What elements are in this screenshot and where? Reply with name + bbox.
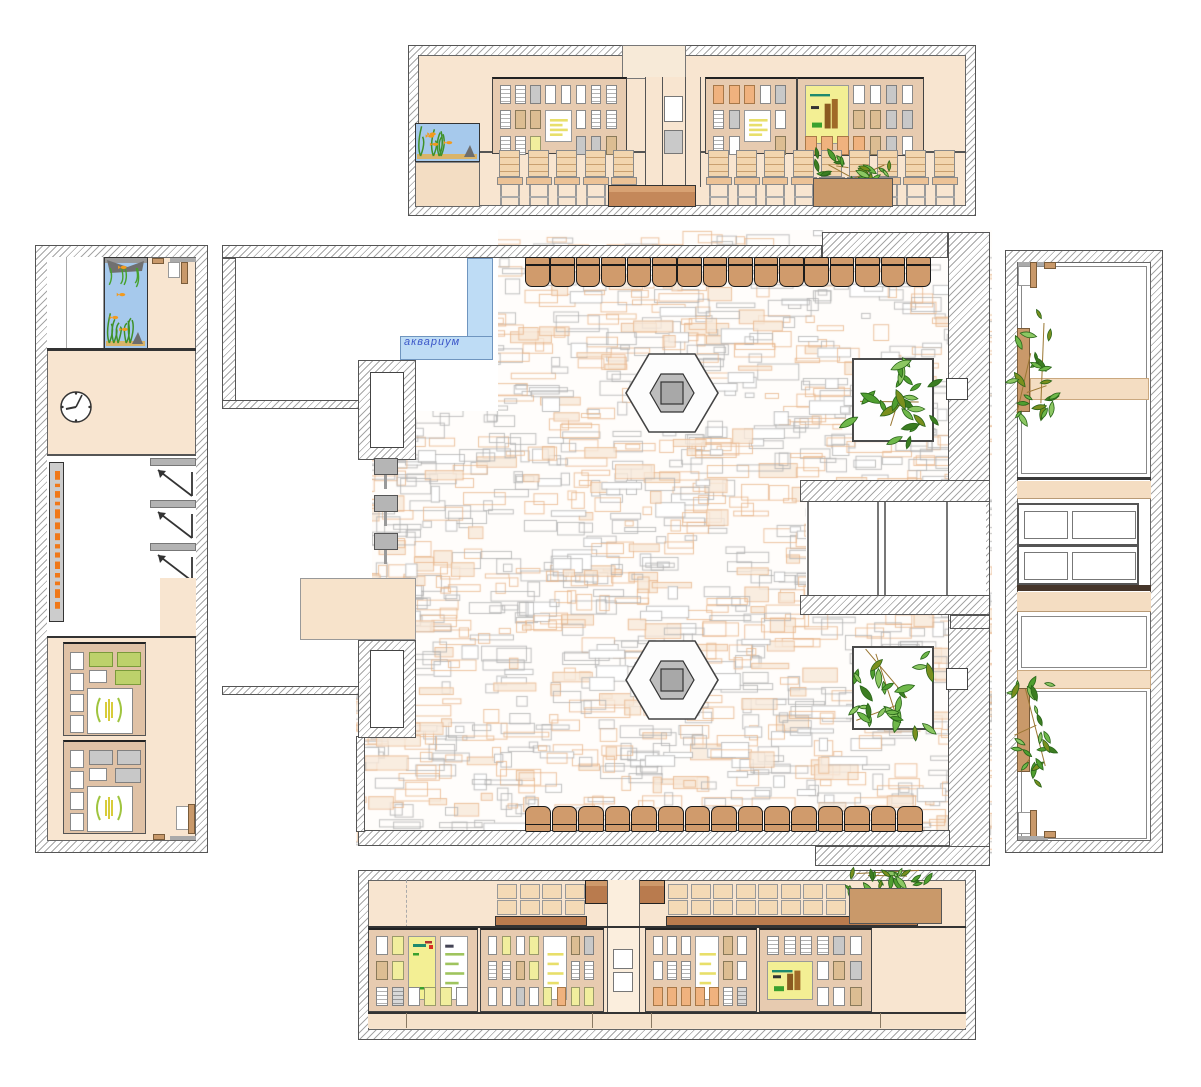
chair-back — [668, 900, 688, 915]
skirting — [368, 1012, 966, 1028]
chair — [578, 806, 604, 832]
chair-back — [668, 884, 688, 899]
notice-card — [667, 961, 677, 980]
hex-column — [624, 352, 720, 434]
notice-card — [584, 961, 593, 980]
chair-back — [713, 884, 733, 899]
planter-plants — [1014, 318, 1054, 420]
coat-hook-plan — [374, 458, 398, 475]
notice-card — [584, 987, 593, 1006]
chair-back — [520, 900, 540, 915]
chair-rail — [495, 916, 587, 926]
divider-line — [1017, 477, 1151, 480]
notice-card — [488, 936, 497, 955]
poster — [545, 110, 571, 142]
chair — [552, 806, 578, 832]
chair-back — [565, 884, 585, 899]
notice-card — [775, 110, 786, 129]
corridor-partition — [807, 502, 809, 595]
notice-card — [376, 936, 388, 955]
notice-card — [817, 936, 829, 955]
wall-panel-peach — [160, 578, 196, 638]
notice-card — [488, 961, 497, 980]
chair-back — [803, 884, 823, 899]
bracket-box — [168, 262, 180, 278]
notice-card — [502, 936, 511, 955]
pier-core — [370, 372, 404, 448]
notice-card — [591, 85, 602, 104]
panel-unit — [1017, 503, 1139, 585]
notice-card — [606, 85, 617, 104]
chair — [685, 806, 711, 832]
notice-card — [584, 936, 593, 955]
chair — [631, 806, 657, 832]
planter-box — [813, 178, 893, 207]
chair-back — [713, 900, 733, 915]
notice-card — [653, 987, 663, 1006]
chair — [706, 150, 733, 207]
notice-card — [376, 987, 388, 1006]
notice-card — [709, 987, 719, 1006]
notice-card — [850, 936, 862, 955]
chair — [728, 257, 753, 287]
console-table — [608, 185, 696, 207]
bench-tab — [1044, 831, 1056, 838]
chair — [762, 150, 789, 207]
chair — [779, 257, 804, 287]
aquarium-label: аквариум — [404, 336, 460, 348]
column-elev — [607, 880, 640, 1012]
room-wall-left — [222, 258, 236, 409]
notice-card — [833, 987, 845, 1006]
notice-card — [760, 85, 771, 104]
chair — [734, 150, 761, 207]
plant-bed — [852, 358, 934, 442]
notice-card — [500, 85, 511, 104]
aquarium-elev — [104, 257, 148, 349]
notice-card — [667, 936, 677, 955]
ceiling-cap — [622, 45, 686, 79]
chair — [818, 806, 844, 832]
chair-back — [497, 884, 517, 899]
chair-back — [542, 900, 562, 915]
notice-card — [729, 110, 740, 129]
notice-card — [850, 987, 862, 1006]
chair-back — [758, 900, 778, 915]
notice-card — [545, 85, 556, 104]
notice-card — [529, 961, 538, 980]
notice-card — [817, 987, 829, 1006]
coat-hook-plan — [374, 533, 398, 550]
notice-card — [543, 987, 552, 1006]
notice-card — [516, 961, 525, 980]
notice-card — [729, 85, 740, 104]
wall-bottom — [358, 830, 950, 846]
corridor-wall-step — [950, 615, 990, 629]
chair — [550, 257, 575, 287]
chair-back — [758, 884, 778, 899]
skirting-joint — [651, 1013, 652, 1028]
notice-card — [571, 987, 580, 1006]
notice-board — [63, 740, 146, 834]
notice-board — [797, 77, 924, 156]
chair — [652, 257, 677, 287]
notice-card — [800, 936, 812, 955]
pier-core — [370, 650, 404, 728]
notice-card — [456, 987, 468, 1006]
notice-card — [681, 936, 691, 955]
notice-card — [515, 85, 526, 104]
chair — [764, 806, 790, 832]
chair-back — [781, 884, 801, 899]
chair-back — [736, 884, 756, 899]
cloak-wall-bottom — [222, 686, 366, 695]
chair-back — [497, 900, 517, 915]
notice-card — [737, 987, 747, 1006]
chair — [703, 257, 728, 287]
notice-card — [606, 110, 617, 129]
notice-card — [653, 936, 663, 955]
vertical-sign — [49, 462, 64, 622]
chair — [627, 257, 652, 287]
skirting-joint — [880, 1013, 881, 1028]
coat-hook-plan — [374, 495, 398, 512]
notice-card — [571, 961, 580, 980]
chair — [658, 806, 684, 832]
notice-card — [516, 936, 525, 955]
bench-base — [170, 836, 196, 840]
column-frame — [664, 96, 683, 122]
notice-card — [695, 987, 705, 1006]
bracket-post — [181, 262, 188, 284]
notice-board — [480, 928, 604, 1012]
notice-card — [516, 987, 525, 1006]
chair — [605, 806, 631, 832]
notice-card — [737, 961, 747, 980]
notice-board — [705, 77, 797, 154]
notice-card — [500, 110, 511, 129]
notice-card — [653, 961, 663, 980]
notice-card — [591, 110, 602, 129]
panel-joint — [66, 257, 67, 349]
notice-card — [850, 961, 862, 980]
skirting-joint — [592, 1013, 593, 1028]
chair — [844, 806, 870, 832]
chair-back — [803, 900, 823, 915]
notice-card — [576, 110, 587, 129]
notice-card — [667, 987, 677, 1006]
notice-card — [529, 936, 538, 955]
notice-card — [502, 987, 511, 1006]
notice-card — [767, 936, 779, 955]
chair — [738, 806, 764, 832]
notice-card — [681, 987, 691, 1006]
chair-back — [826, 900, 846, 915]
notice-card — [784, 936, 796, 955]
coat-hook-shelf — [150, 458, 196, 466]
notice-card — [723, 961, 733, 980]
chair-back — [520, 884, 540, 899]
notice-card — [775, 85, 786, 104]
corridor-wall-top — [800, 480, 990, 502]
notice-card — [737, 936, 747, 955]
wall-top-right — [822, 232, 948, 258]
chair — [677, 257, 702, 287]
divider-line — [47, 348, 196, 351]
bracket-post — [1030, 262, 1037, 288]
plant-bed — [852, 646, 934, 730]
wall-bottom-step — [815, 846, 990, 866]
room-wall-bottom — [222, 400, 366, 409]
dark-band — [1017, 585, 1151, 591]
chair — [897, 806, 923, 832]
notice-board — [492, 77, 627, 154]
window-frame — [1021, 616, 1147, 668]
notice-card — [817, 961, 829, 980]
notice-card — [744, 85, 755, 104]
notice-card — [723, 936, 733, 955]
notice-card — [529, 987, 538, 1006]
notice-card — [886, 85, 898, 104]
drawing-canvas: аквариум — [0, 0, 1201, 1087]
chair — [932, 150, 959, 207]
notice-card — [440, 987, 452, 1006]
notice-card — [870, 85, 882, 104]
notice-card — [530, 110, 541, 129]
notice-card — [488, 987, 497, 1006]
wall-niche — [946, 378, 968, 400]
chair — [791, 806, 817, 832]
chair — [804, 257, 829, 287]
coat-hook-stem — [384, 475, 387, 489]
wall-panel-white — [47, 257, 104, 349]
notice-card — [870, 110, 882, 129]
notice-card — [723, 987, 733, 1006]
notice-card — [713, 110, 724, 129]
column-frame — [613, 949, 633, 969]
outside-bottomleft — [222, 695, 356, 855]
bracket-tab — [1044, 262, 1056, 269]
chair — [554, 150, 581, 207]
skirting-joint — [406, 1013, 407, 1028]
bracket-tab — [152, 258, 164, 264]
notice-card — [576, 85, 587, 104]
notice-card — [392, 987, 404, 1006]
chair — [881, 257, 906, 287]
coat-hook-shelf — [150, 543, 196, 551]
chair-back — [691, 884, 711, 899]
wardrobe-desk — [300, 578, 416, 640]
aquarium-stand — [415, 160, 480, 207]
chair — [576, 257, 601, 287]
chair — [525, 806, 551, 832]
bench-post — [188, 804, 195, 834]
notice-card — [408, 987, 420, 1006]
chair — [583, 150, 610, 207]
notice-card — [713, 85, 724, 104]
notice-card — [530, 85, 541, 104]
bench-post — [1030, 810, 1037, 838]
corridor-partition — [946, 502, 948, 595]
notice-card — [853, 110, 865, 129]
corridor-partition — [877, 502, 879, 595]
poster — [767, 961, 813, 1000]
notice-board — [759, 928, 872, 1012]
notice-card — [392, 936, 404, 955]
dado-line — [47, 636, 196, 638]
corridor — [806, 502, 986, 595]
chair — [871, 806, 897, 832]
floor-edge — [222, 846, 816, 858]
wall-niche — [946, 668, 968, 690]
notice-card — [853, 85, 865, 104]
chair — [711, 806, 737, 832]
notice-card — [376, 961, 388, 980]
aquarium-elev — [415, 123, 480, 162]
planter-plants — [1014, 678, 1054, 780]
notice-card — [502, 961, 511, 980]
poster — [744, 110, 771, 142]
notice-board — [645, 928, 757, 1012]
chair-back — [826, 884, 846, 899]
chair-back — [781, 900, 801, 915]
notice-card — [833, 936, 845, 955]
coat-hook-shelf — [150, 500, 196, 508]
chair — [526, 150, 553, 207]
wall-left-lower — [356, 736, 365, 832]
chair-back — [542, 884, 562, 899]
notice-card — [557, 987, 566, 1006]
wall-band — [1017, 592, 1151, 612]
bench-tab — [153, 834, 165, 840]
cloakroom — [222, 409, 372, 686]
chair — [906, 257, 931, 287]
notice-card — [681, 961, 691, 980]
notice-card — [902, 85, 914, 104]
corridor-partition — [884, 502, 886, 595]
notice-board — [63, 642, 146, 736]
notice-card — [424, 987, 436, 1006]
coat-hook-stem — [384, 512, 387, 526]
notice-board — [368, 928, 478, 1012]
wall-clock — [57, 388, 95, 426]
hex-column — [624, 639, 720, 721]
wall-band — [1017, 481, 1151, 499]
notice-card — [571, 936, 580, 955]
chair — [903, 150, 930, 207]
chair-back — [565, 900, 585, 915]
notice-card — [886, 110, 898, 129]
chair — [497, 150, 524, 207]
coat-hook-stem — [384, 550, 387, 564]
chair — [754, 257, 779, 287]
corridor-wall-bottom — [800, 595, 990, 615]
notice-card — [902, 110, 914, 129]
planter-box — [849, 888, 942, 924]
chair — [525, 257, 550, 287]
chair — [855, 257, 880, 287]
chair — [830, 257, 855, 287]
notice-card — [833, 961, 845, 980]
notice-card — [561, 85, 572, 104]
chair — [601, 257, 626, 287]
chair-back — [691, 900, 711, 915]
notice-card — [515, 110, 526, 129]
chair-back — [736, 900, 756, 915]
column-frame — [664, 130, 683, 154]
notice-card — [392, 961, 404, 980]
column-frame — [613, 972, 633, 992]
